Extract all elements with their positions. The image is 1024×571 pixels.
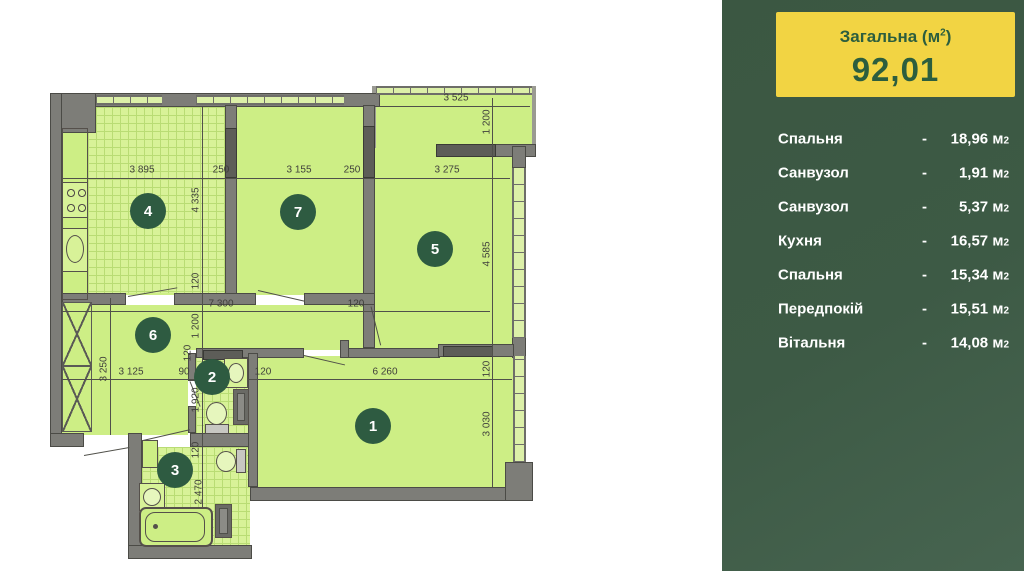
dimension-label: 4 335 <box>191 187 202 212</box>
room-area-value: 18,96 м2 <box>951 131 1009 148</box>
total-area-value: 92,01 <box>776 51 1015 89</box>
vent-shaft-icon <box>62 366 92 432</box>
wall-bath3-bottom <box>128 545 252 559</box>
dim-line <box>110 298 111 435</box>
pier-7-5 <box>363 126 375 178</box>
kitchen-sink-icon <box>62 228 88 272</box>
dash-separator: - <box>922 233 927 250</box>
room-list: Спальня - 18,96 м2 Санвузол - 1,91 м2 Са… <box>722 122 1024 360</box>
room-list-item: Спальня - 15,34 м2 <box>722 258 1024 292</box>
floor-plan: 3 8952503 1552503 2753 5257 3001203 1259… <box>0 0 722 571</box>
dim-line <box>62 311 490 312</box>
dimension-label: 3 525 <box>443 93 468 104</box>
room-list-item: Спальня - 18,96 м2 <box>722 122 1024 156</box>
washing-machine-icon <box>233 389 249 425</box>
toilet-icon <box>204 402 230 434</box>
wall-hall-room1-b <box>344 348 440 358</box>
room-list-item: Кухня - 16,57 м2 <box>722 224 1024 258</box>
dimension-label: 1 920 <box>191 387 202 412</box>
dimension-label: 120 <box>348 299 365 310</box>
dimension-label: 3 250 <box>99 356 110 381</box>
room-name: Спальня <box>778 131 843 148</box>
room-list-item: Вітальня - 14,08 м2 <box>722 326 1024 360</box>
wall-room1-bottom <box>250 487 512 501</box>
dim-line <box>62 379 512 380</box>
room-number-badge: 6 <box>135 317 171 353</box>
wall-stub-door1 <box>340 340 349 358</box>
dimension-label: 120 <box>191 273 202 290</box>
room-area-value: 16,57 м2 <box>951 233 1009 250</box>
room-number-badge: 2 <box>194 359 230 395</box>
dimension-label: 3 895 <box>129 165 154 176</box>
window-room1-right <box>513 356 526 462</box>
window-room5-right <box>512 168 526 338</box>
dimension-label: 7 300 <box>208 299 233 310</box>
dash-separator: - <box>922 267 927 284</box>
dimension-label: 3 125 <box>118 367 143 378</box>
room-name: Вітальня <box>778 335 845 352</box>
dim-line <box>380 106 530 107</box>
room-number-badge: 1 <box>355 408 391 444</box>
dimension-label: 3 030 <box>482 411 493 436</box>
dimension-label: 120 <box>191 442 202 459</box>
dimension-label: 1 200 <box>191 313 202 338</box>
summary-panel: Загальна (м2) 92,01 Спальня - 18,96 м2 С… <box>722 0 1024 571</box>
wall-bottomright-corner <box>505 462 533 501</box>
dimension-label: 120 <box>183 345 194 362</box>
total-area-label: Загальна (м2) <box>776 27 1015 47</box>
dim-line <box>62 178 510 179</box>
window-top-main <box>196 95 344 105</box>
window-top-left <box>96 95 162 105</box>
room-area-value: 5,37 м2 <box>959 199 1009 216</box>
cabinet-icon <box>142 440 158 468</box>
apartment-plan-page: 3 8952503 1552503 2753 5257 3001203 1259… <box>0 0 1024 571</box>
dimension-label: 6 260 <box>372 367 397 378</box>
dash-separator: - <box>922 165 927 182</box>
dash-separator: - <box>922 335 927 352</box>
water-heater-icon <box>215 504 232 538</box>
room-name: Передпокій <box>778 301 863 318</box>
room-number-badge: 7 <box>280 194 316 230</box>
room-list-item: Передпокій - 15,51 м2 <box>722 292 1024 326</box>
room-number-badge: 4 <box>130 193 166 229</box>
dimension-label: 4 585 <box>482 241 493 266</box>
dash-separator: - <box>922 301 927 318</box>
wall-room5-right-bottom <box>512 336 526 358</box>
pier-room5-bottom <box>443 346 493 357</box>
dimension-label: 3 275 <box>434 165 459 176</box>
bathtub-icon <box>139 507 213 547</box>
door-entrance <box>84 447 129 456</box>
dimension-label: 90 <box>178 367 189 378</box>
dimension-label: 1 200 <box>482 109 493 134</box>
wall-left <box>50 93 62 447</box>
wall-bottomleft <box>50 433 84 447</box>
dimension-label: 3 155 <box>286 165 311 176</box>
room-number-badge: 3 <box>157 452 193 488</box>
wall-room5-right-top <box>512 146 526 168</box>
room-list-item: Санвузол - 1,91 м2 <box>722 156 1024 190</box>
dash-separator: - <box>922 131 927 148</box>
room-area-value: 14,08 м2 <box>951 335 1009 352</box>
stove-icon <box>62 182 88 218</box>
balcony-wall-dark <box>436 144 496 157</box>
room-name: Спальня <box>778 267 843 284</box>
room-name: Санвузол <box>778 165 849 182</box>
room-area-value: 1,91 м2 <box>959 165 1009 182</box>
room-area-value: 15,34 м2 <box>951 267 1009 284</box>
dimension-label: 250 <box>344 165 361 176</box>
room-name: Кухня <box>778 233 822 250</box>
room-list-item: Санвузол - 5,37 м2 <box>722 190 1024 224</box>
room-number-badge: 5 <box>417 231 453 267</box>
dimension-label: 120 <box>482 361 493 378</box>
room-name: Санвузол <box>778 199 849 216</box>
room-area-value: 15,51 м2 <box>951 301 1009 318</box>
toilet-icon <box>216 448 246 474</box>
dimension-label: 120 <box>255 367 272 378</box>
dimension-label: 2 470 <box>194 479 205 504</box>
total-area-card: Загальна (м2) 92,01 <box>776 12 1015 97</box>
dash-separator: - <box>922 199 927 216</box>
dimension-label: 250 <box>213 165 230 176</box>
